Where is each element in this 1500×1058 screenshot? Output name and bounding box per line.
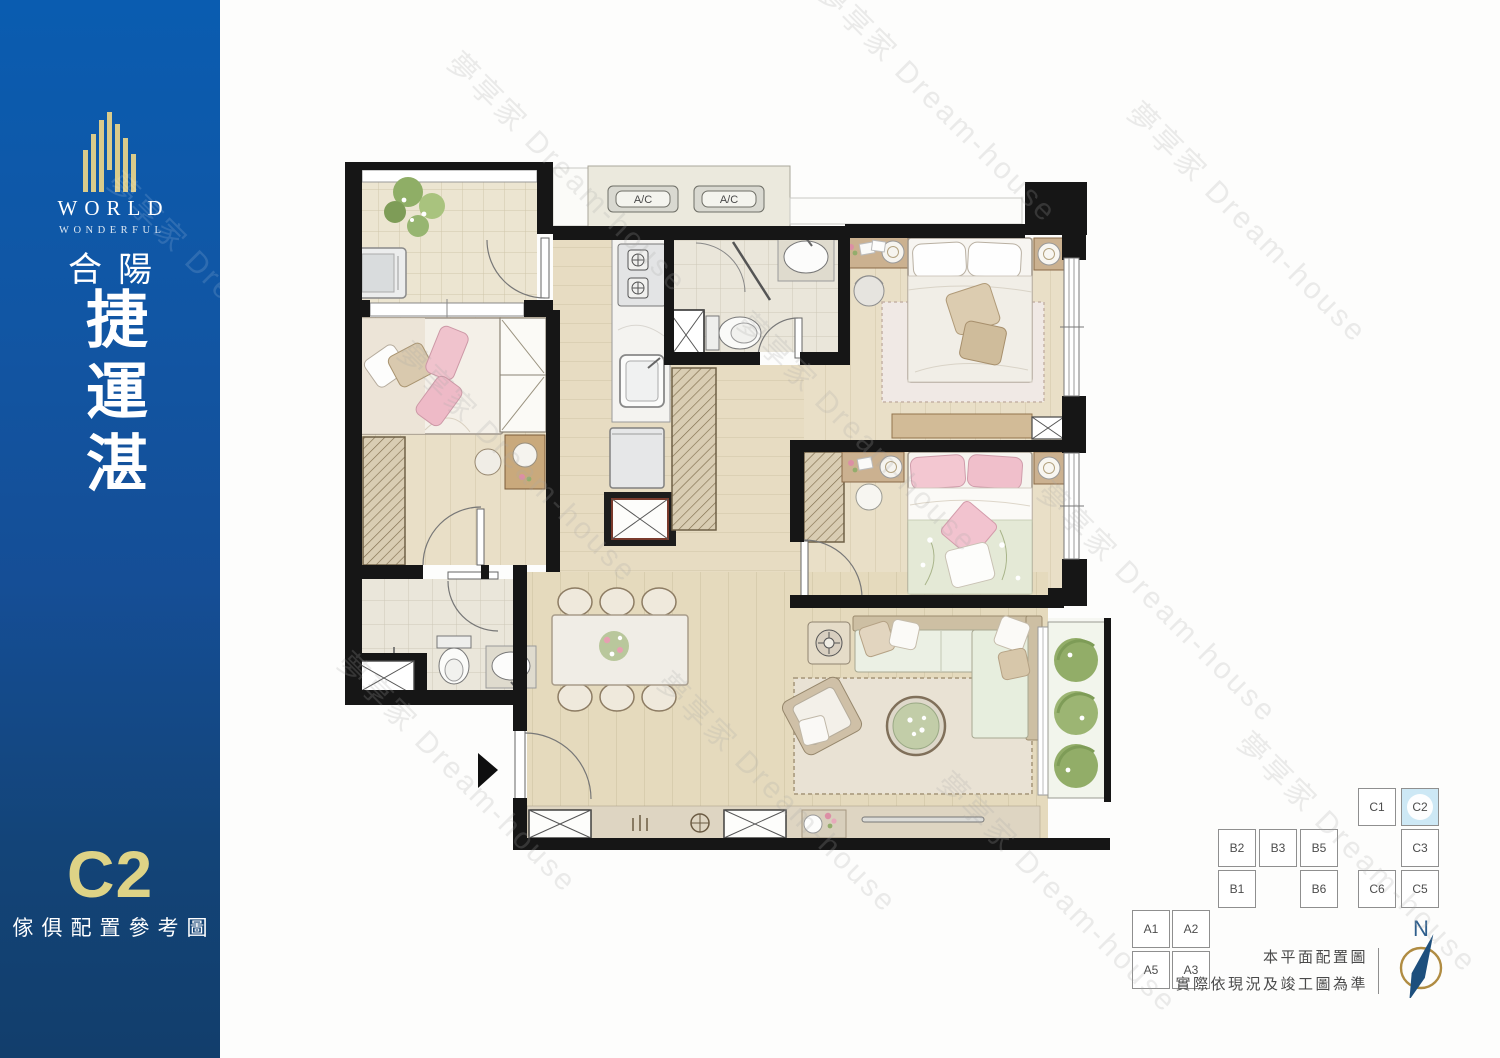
note-divider: [1378, 948, 1379, 994]
kitchen-shaft: [604, 492, 676, 546]
ac-label-1: A/C: [634, 194, 652, 206]
master-low-cabinet: [892, 414, 1032, 438]
disclaimer-note: 本平面配置圖 實際依現況及竣工圖為準: [1175, 944, 1368, 998]
bed-a: [357, 318, 503, 434]
bed-b: [908, 452, 1032, 594]
side-table: [808, 622, 850, 664]
kitchen-sink: [620, 355, 664, 407]
entrance-arrow-icon: [478, 753, 498, 788]
disclaimer-line-1: 本平面配置圖: [1175, 944, 1368, 971]
ac-unit-1: A/C: [608, 186, 678, 212]
brand-world: WORLD: [0, 196, 220, 221]
living-room-furniture: [780, 615, 1042, 794]
master-nightstand: [1034, 238, 1064, 270]
master-stool: [854, 276, 884, 306]
brand-wonderful: WONDERFUL: [0, 225, 220, 236]
keyplan-unit-c6: C6: [1358, 870, 1396, 908]
wardrobe-a: [363, 437, 405, 565]
ac-ledge: A/C A/C: [553, 166, 1022, 228]
tv-soundbar: [862, 817, 984, 822]
cabinet-a: [500, 318, 546, 432]
corridor-wardrobe: [672, 368, 716, 530]
disclaimer-line-2: 實際依現況及竣工圖為準: [1175, 971, 1368, 998]
building-logo-icon: [77, 112, 143, 192]
unit-caption: 傢俱配置參考圖: [0, 912, 220, 942]
living-balcony: [1038, 622, 1106, 798]
keyplan-unit-b5: B5: [1300, 829, 1338, 867]
project-name: 捷運湛: [79, 287, 141, 503]
entrance-door: [515, 729, 525, 799]
compass-icon: N: [1392, 914, 1450, 998]
keyplan-unit-b3: B3: [1259, 829, 1297, 867]
ac-unit-2: A/C: [694, 186, 764, 212]
master-shaft: [1032, 417, 1064, 439]
brand-sidebar: WORLD WONDERFUL 合陽 捷運湛 C2 傢俱配置參考圖: [0, 0, 220, 1058]
keyplan-unit-a5: A5: [1132, 951, 1170, 989]
floor-plan: A/C A/C: [340, 155, 1120, 855]
keyplan-unit-c1: C1: [1358, 788, 1396, 826]
page: WORLD WONDERFUL 合陽 捷運湛 C2 傢俱配置參考圖: [0, 0, 1500, 1058]
flower-table: [802, 810, 846, 838]
unit-label: C2: [0, 836, 220, 912]
watermark: 夢享家 Dream-house: [1119, 90, 1380, 351]
wardrobe-b: [804, 452, 844, 542]
toilet-2: [437, 636, 471, 684]
keyplan-unit-b6: B6: [1300, 870, 1338, 908]
bedroom-b-stool: [856, 484, 882, 510]
keyplan-unit-b2: B2: [1218, 829, 1256, 867]
keyplan-unit-b1: B1: [1218, 870, 1256, 908]
console-shaft-1: [529, 810, 591, 838]
bathroom-2-sink: [486, 646, 536, 690]
console-shaft-2: [724, 810, 786, 838]
keyplan-unit-c2-highlighted: C2: [1401, 788, 1439, 826]
compass-north-label: N: [1413, 916, 1429, 941]
coffee-table: [887, 697, 945, 755]
bedroom-b-nightstand: [1034, 452, 1064, 484]
toilet-1: [706, 316, 761, 350]
keyplan-unit-c3: C3: [1401, 829, 1439, 867]
bathroom-1-sink: [778, 233, 834, 281]
keyplan-unit-c5: C5: [1401, 870, 1439, 908]
keyplan-unit-a1: A1: [1132, 910, 1170, 948]
master-bed: [908, 238, 1032, 382]
brand-cn: 合陽: [0, 242, 220, 291]
keyplan-unit-a2: A2: [1172, 910, 1210, 948]
washing-machine: [356, 248, 406, 298]
refrigerator: [610, 428, 664, 488]
ac-label-2: A/C: [720, 194, 738, 206]
stove: [618, 244, 666, 306]
dining-furniture: [552, 588, 688, 711]
